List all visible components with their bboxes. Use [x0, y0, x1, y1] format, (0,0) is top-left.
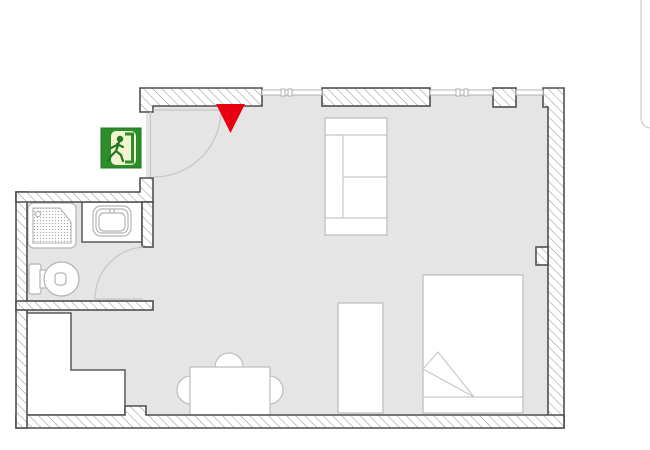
exit-sign-figure-head — [117, 136, 123, 142]
bed — [423, 275, 523, 413]
top-wall-pillar — [493, 88, 516, 107]
bathroom-right-wall — [142, 202, 153, 247]
window-3 — [516, 90, 543, 95]
shower-drain — [35, 211, 40, 216]
toilet-tank — [29, 264, 41, 294]
floor-plan-viewer — [0, 0, 650, 450]
panel-edge — [641, 0, 650, 128]
sink-faucet — [110, 209, 114, 213]
bathroom-bottom-wall — [16, 301, 153, 310]
plan-layers — [16, 0, 650, 428]
floor-plan — [0, 0, 650, 450]
window-1-tick-a — [281, 89, 285, 96]
window-2 — [430, 90, 493, 95]
sink-bowl — [99, 213, 125, 231]
top-wall-middle — [322, 88, 430, 106]
bathroom-door-gap-floor — [142, 247, 153, 301]
bathroom-top-wall — [16, 178, 153, 202]
dining-table — [190, 367, 270, 415]
window-2-tick-b — [464, 89, 468, 96]
right-wall-bump — [536, 247, 548, 265]
window-1-tick-b — [288, 89, 292, 96]
window-2-tick-a — [456, 89, 460, 96]
toilet-drain — [55, 273, 66, 285]
desk — [338, 303, 383, 413]
